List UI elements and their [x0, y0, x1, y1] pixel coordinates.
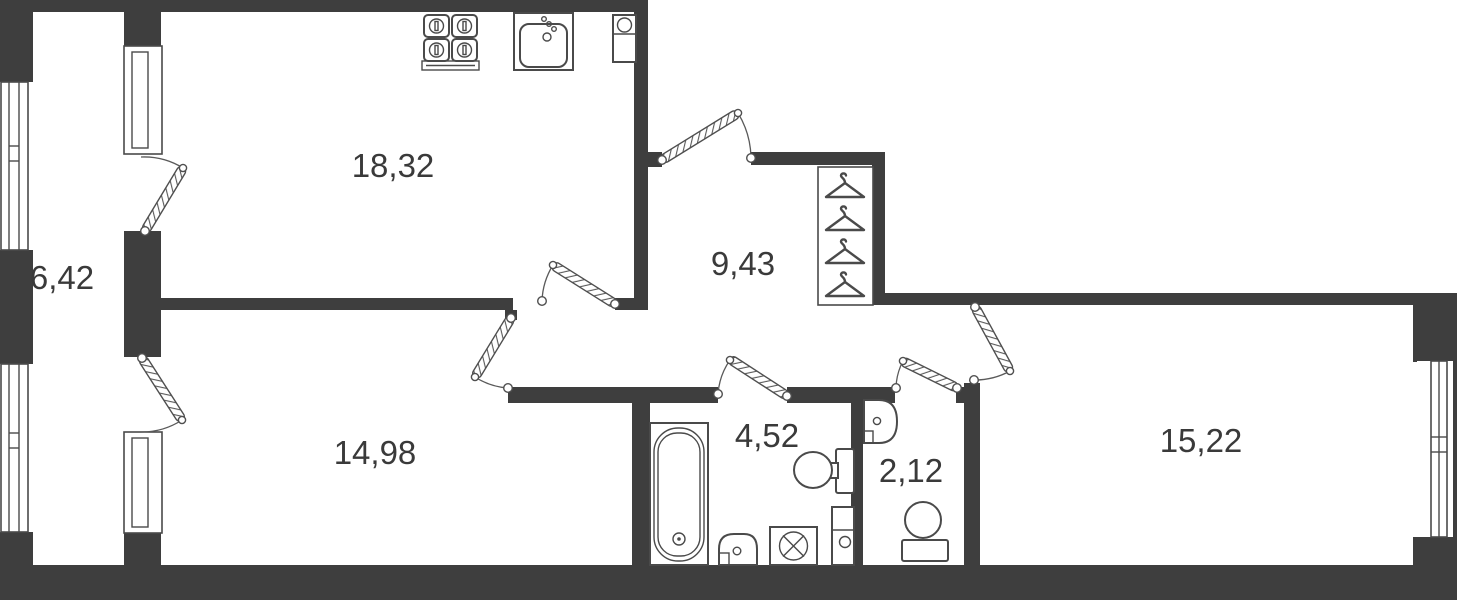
duct-icon	[832, 507, 854, 565]
wall-left-mid	[0, 250, 33, 364]
walls	[0, 0, 1457, 600]
vent-box-icon	[613, 15, 636, 62]
entry-door	[658, 109, 756, 164]
bedroom-balcony-window	[124, 432, 162, 533]
wall-bottom	[0, 565, 1457, 600]
balcony-window-1	[1, 82, 28, 250]
balcony-window-2	[1, 364, 28, 532]
bath-top-wall-left	[508, 387, 718, 403]
room-label-wc: 2,12	[879, 452, 943, 489]
kitchen-balcony-door	[141, 157, 187, 235]
room-label-bedroom-left: 14,98	[334, 434, 417, 471]
room-label-bedroom-right: 15,22	[1160, 422, 1243, 459]
bathtub-icon	[650, 423, 708, 565]
room-label-hallway: 9,43	[711, 245, 775, 282]
bedroom-right-window	[1417, 361, 1453, 537]
bedroom-right-top-wall	[975, 293, 1457, 305]
bathroom-door	[714, 355, 792, 400]
room-label-balcony: 6,42	[30, 259, 94, 296]
vestibule-top-wall	[874, 293, 975, 305]
toilet-icon	[794, 449, 854, 493]
wall-top	[0, 0, 648, 12]
washing-machine-icon	[770, 527, 817, 565]
room-label-bathroom: 4,52	[735, 417, 799, 454]
kitchen-door	[538, 261, 620, 308]
right-wall-upper	[1413, 305, 1457, 362]
wardrobe	[818, 167, 873, 305]
floor-plan-page: 18,32 6,42 9,43 14,98 4,52 2,12 15,22	[0, 0, 1457, 600]
bedroom-bath-wall	[632, 390, 650, 565]
bedroom-right-door	[970, 303, 1014, 385]
wc-door	[892, 357, 962, 392]
floor-plan-svg: 18,32 6,42 9,43 14,98 4,52 2,12 15,22	[0, 0, 1457, 600]
balcony-wall-mid	[124, 231, 161, 357]
hallway-top-wall	[751, 152, 885, 165]
hallway-right-wall	[872, 152, 885, 305]
stove-icon	[422, 15, 479, 70]
balcony-wall-top	[124, 12, 161, 50]
kitchen-bedroom-wall	[155, 298, 513, 310]
bedroom-balcony-door	[138, 354, 186, 432]
washbasin-icon	[719, 534, 757, 565]
bedroom-left-door	[471, 314, 515, 393]
wall-left-top	[0, 0, 33, 82]
fixtures	[422, 13, 948, 565]
balcony-wall-bottom	[124, 533, 161, 565]
right-wall-lower	[1413, 537, 1457, 565]
kitchen-sink-icon	[514, 13, 573, 70]
wc-toilet-icon	[902, 502, 948, 561]
kitchen-balcony-window	[124, 46, 162, 154]
wc-washbasin-icon	[864, 400, 897, 443]
wc-bedroom-wall	[964, 383, 980, 565]
room-label-kitchen-living: 18,32	[352, 147, 435, 184]
